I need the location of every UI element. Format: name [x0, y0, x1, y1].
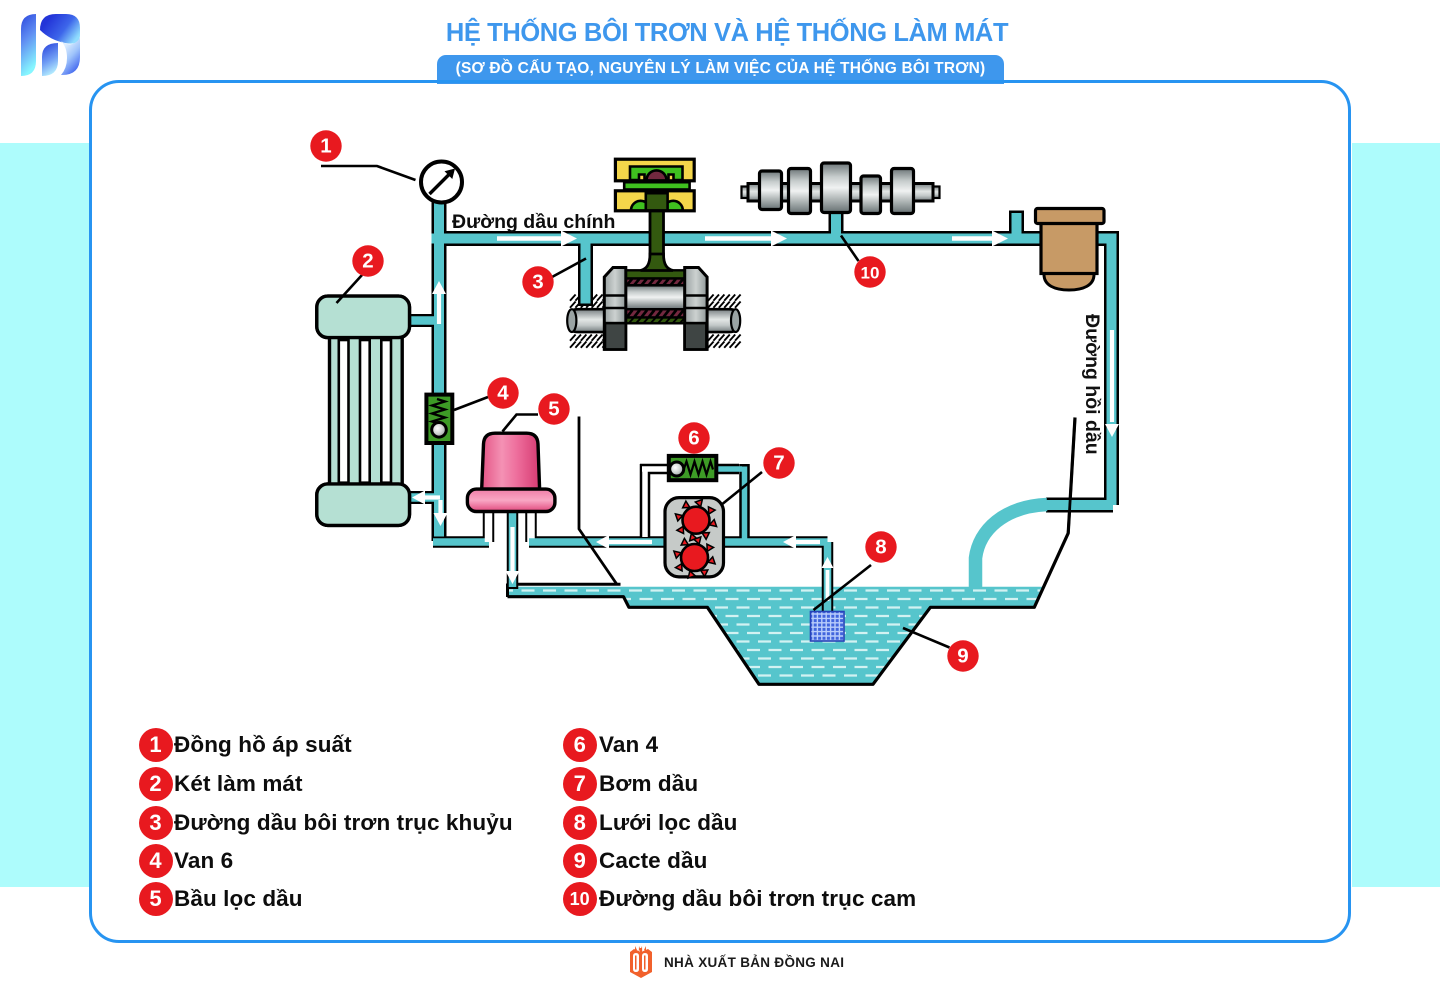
- svg-text:4: 4: [497, 382, 509, 405]
- svg-text:6: 6: [688, 427, 699, 450]
- svg-text:7: 7: [773, 452, 784, 475]
- svg-text:3: 3: [532, 271, 543, 294]
- svg-text:Đường dầu chính: Đường dầu chính: [452, 211, 615, 233]
- svg-text:9: 9: [957, 645, 968, 668]
- svg-text:10: 10: [861, 264, 880, 283]
- svg-text:2: 2: [362, 250, 373, 273]
- svg-text:8: 8: [875, 536, 886, 559]
- svg-text:5: 5: [548, 398, 559, 421]
- svg-text:1: 1: [320, 135, 331, 158]
- svg-text:Đường hồi dầu: Đường hồi dầu: [1081, 314, 1103, 455]
